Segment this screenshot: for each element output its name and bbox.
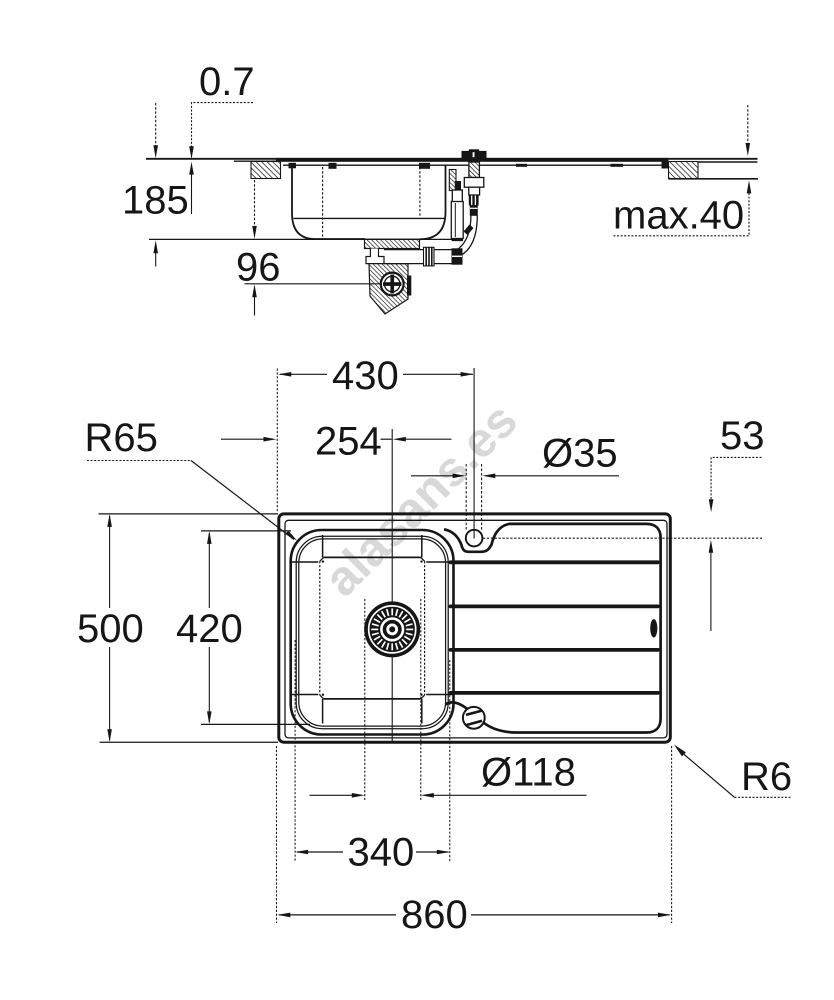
svg-text:max.40: max.40 (613, 194, 744, 238)
svg-text:R65: R65 (85, 416, 158, 460)
svg-text:254: 254 (315, 420, 382, 464)
svg-text:860: 860 (401, 893, 468, 937)
svg-text:430: 430 (332, 354, 399, 398)
svg-text:Ø118: Ø118 (481, 751, 576, 795)
svg-text:Ø35: Ø35 (542, 432, 618, 476)
svg-text:R6: R6 (741, 755, 792, 799)
svg-text:96: 96 (236, 246, 281, 290)
svg-text:53: 53 (720, 414, 765, 458)
svg-text:0.7: 0.7 (199, 60, 255, 104)
svg-text:340: 340 (348, 831, 415, 875)
svg-text:420: 420 (176, 607, 243, 651)
svg-text:500: 500 (77, 607, 144, 651)
svg-text:185: 185 (122, 179, 189, 223)
